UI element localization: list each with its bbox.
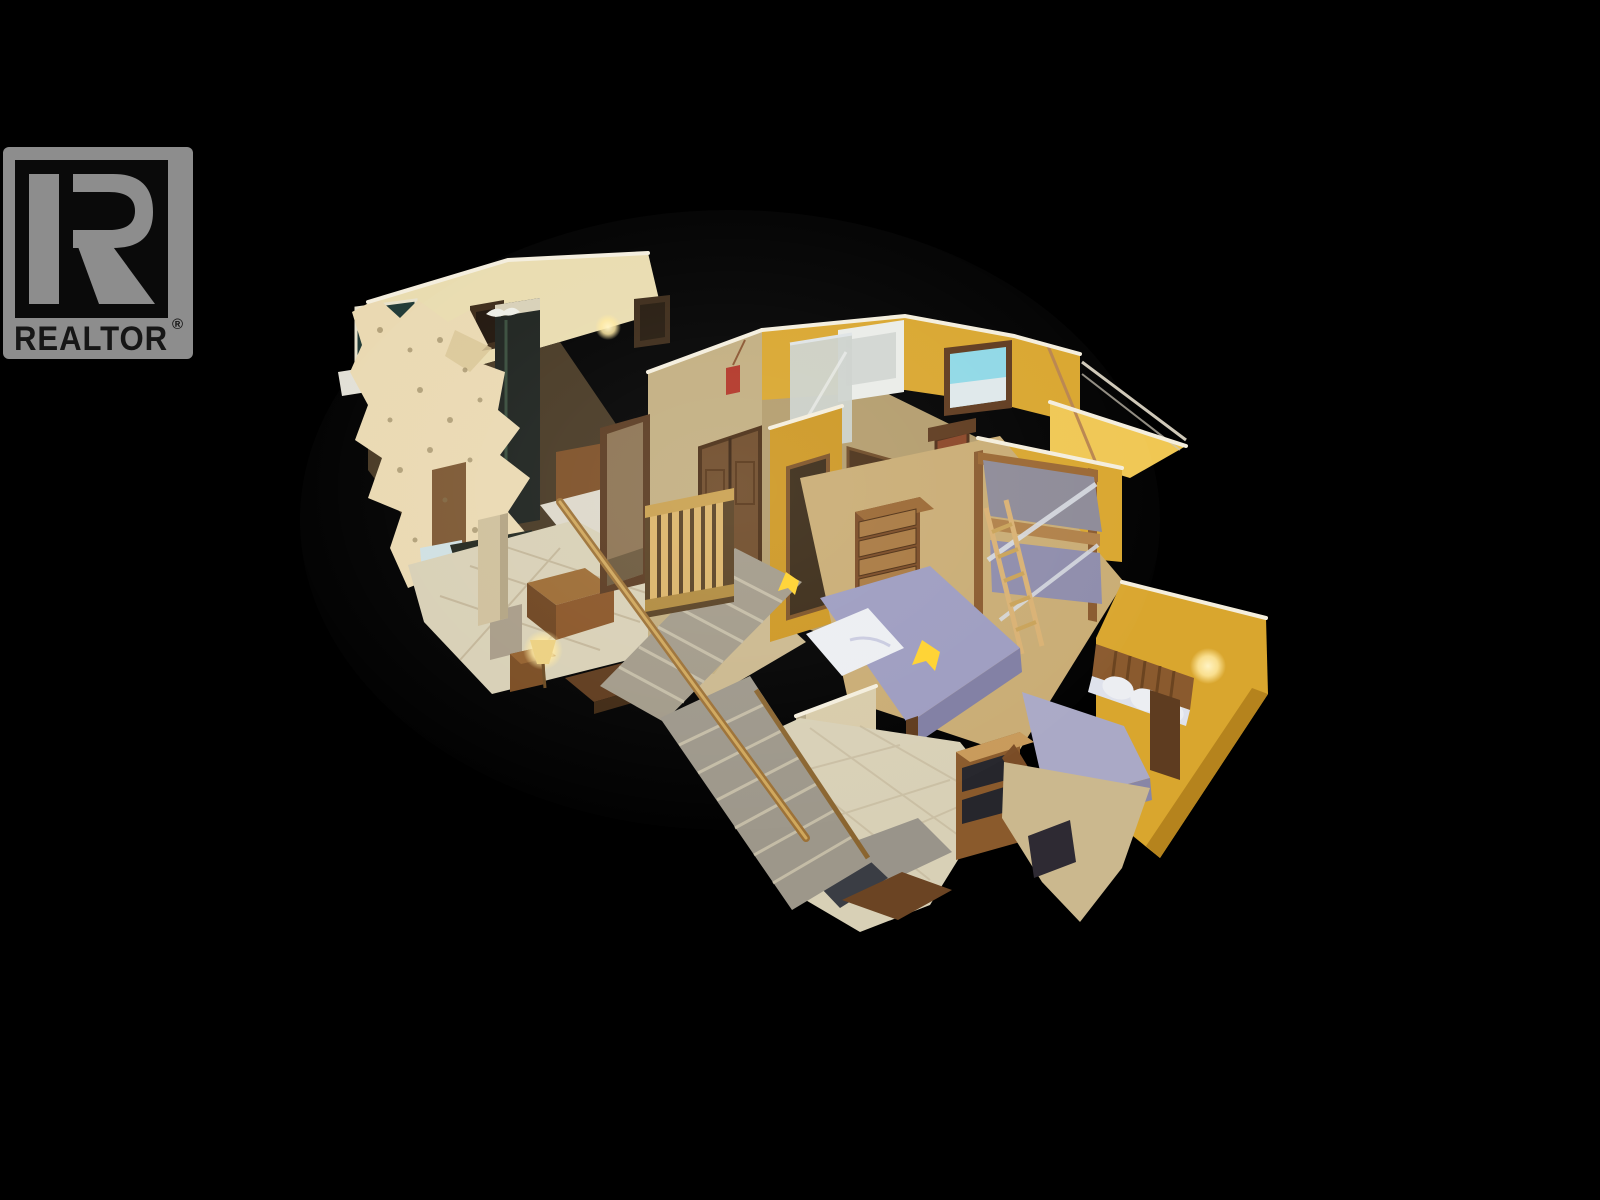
- registered-symbol: ®: [172, 316, 184, 333]
- realtor-wordmark: REALTOR: [14, 320, 168, 358]
- door-jamb: [1150, 690, 1180, 780]
- dollhouse-model: [300, 210, 1268, 932]
- wall-sconce-glow: [1190, 648, 1226, 684]
- listing-photo-3d-dollhouse: REALTOR ®: [0, 0, 1600, 1200]
- realtor-logo: REALTOR ®: [3, 147, 193, 359]
- screenshot-canvas: REALTOR ®: [0, 0, 1600, 1200]
- light-overlay: [300, 210, 1160, 830]
- bedroom-carpet: [1002, 762, 1150, 922]
